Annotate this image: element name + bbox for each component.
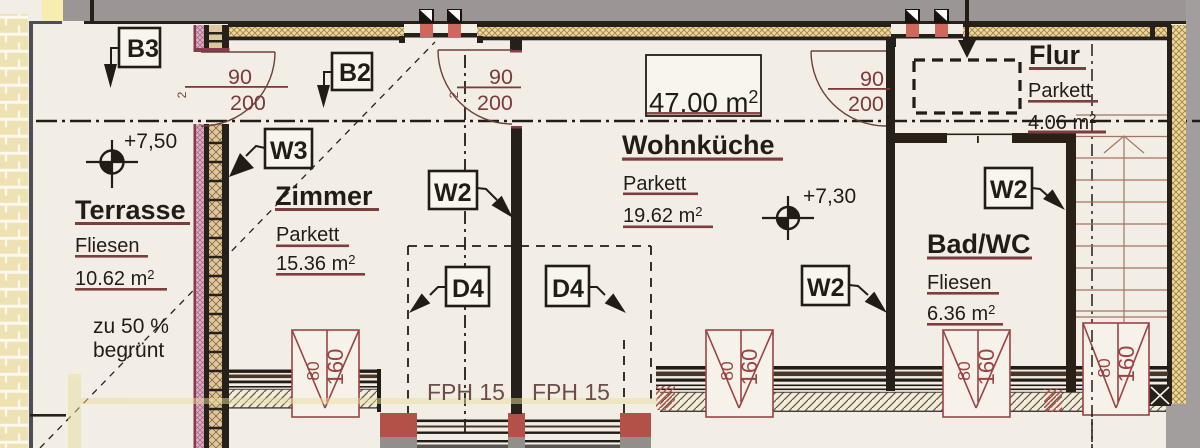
- svg-text:90: 90: [489, 65, 513, 89]
- svg-text:D4: D4: [452, 275, 484, 303]
- svg-text:19.62 m2: 19.62 m2: [623, 204, 703, 227]
- svg-text:Flur: Flur: [1029, 40, 1080, 70]
- svg-text:200: 200: [848, 92, 884, 116]
- svg-text:B3: B3: [127, 35, 159, 63]
- svg-text:2: 2: [175, 91, 189, 98]
- svg-text:160: 160: [323, 349, 348, 386]
- svg-text:Parkett: Parkett: [623, 173, 687, 195]
- svg-text:200: 200: [477, 91, 513, 115]
- svg-text:Fliesen: Fliesen: [927, 272, 991, 294]
- svg-text:10.62 m2: 10.62 m2: [75, 267, 155, 290]
- svg-text:W3: W3: [270, 137, 308, 165]
- svg-text:160: 160: [1114, 346, 1139, 383]
- svg-text:+7,30: +7,30: [803, 185, 856, 208]
- svg-text:Zimmer: Zimmer: [275, 181, 373, 211]
- svg-text:160: 160: [974, 349, 999, 386]
- svg-text:Parkett: Parkett: [276, 224, 340, 246]
- svg-text:6.36 m2: 6.36 m2: [927, 302, 995, 325]
- svg-text:Parkett: Parkett: [1028, 80, 1092, 102]
- svg-text:FPH 15: FPH 15: [427, 379, 505, 405]
- svg-text:Fliesen: Fliesen: [75, 235, 139, 257]
- svg-text:90: 90: [860, 67, 884, 91]
- svg-text:W2: W2: [990, 176, 1028, 204]
- svg-text:begrünt: begrünt: [93, 339, 164, 362]
- svg-text:2: 2: [447, 91, 461, 98]
- svg-text:B2: B2: [339, 59, 371, 87]
- svg-text:80: 80: [1094, 358, 1114, 378]
- svg-text:15.36 m2: 15.36 m2: [276, 252, 356, 275]
- svg-text:Wohnküche: Wohnküche: [622, 130, 775, 160]
- svg-text:Terrasse: Terrasse: [75, 195, 186, 225]
- svg-text:80: 80: [954, 361, 974, 381]
- svg-text:200: 200: [230, 91, 266, 115]
- svg-text:FPH 15: FPH 15: [532, 379, 610, 405]
- svg-text:+7,50: +7,50: [124, 130, 177, 153]
- svg-text:90: 90: [228, 65, 252, 89]
- svg-text:W2: W2: [434, 179, 472, 207]
- svg-text:80: 80: [717, 361, 737, 381]
- svg-text:W2: W2: [807, 274, 845, 302]
- svg-text:zu 50 %: zu 50 %: [93, 315, 169, 338]
- svg-text:D4: D4: [552, 275, 584, 303]
- svg-text:80: 80: [303, 361, 323, 381]
- svg-text:Bad/WC: Bad/WC: [927, 229, 1031, 259]
- svg-text:160: 160: [737, 349, 762, 386]
